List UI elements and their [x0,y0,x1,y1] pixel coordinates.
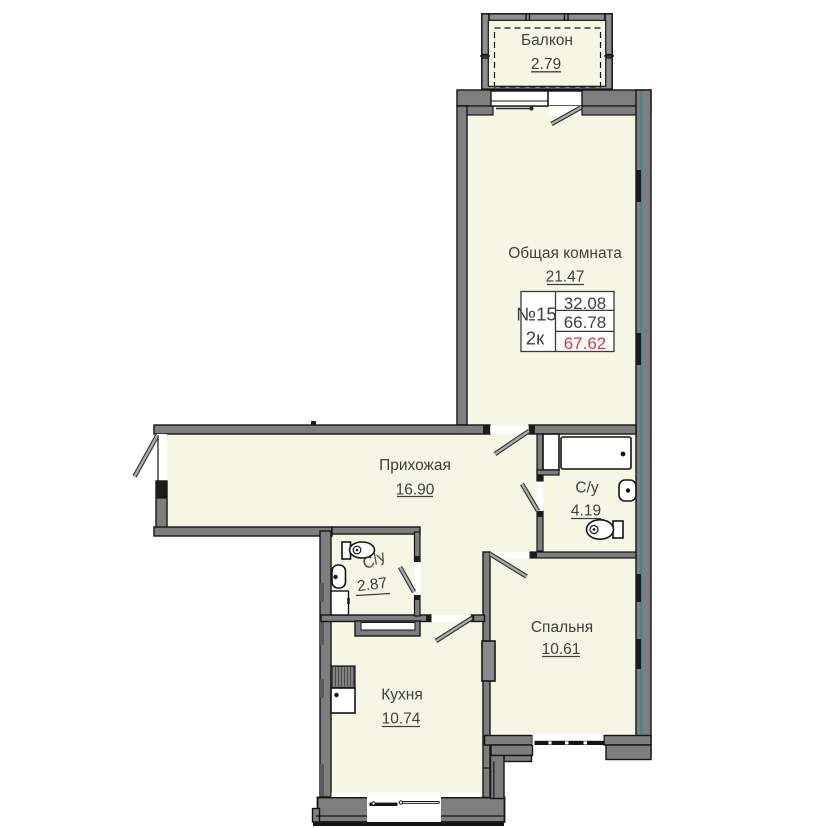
svg-text:66.78: 66.78 [564,313,607,332]
svg-text:Спальня: Спальня [531,619,593,636]
svg-text:Общая комната: Общая комната [508,245,622,262]
svg-text:С/у: С/у [575,479,599,496]
svg-text:32.08: 32.08 [564,294,607,313]
svg-text:10.74: 10.74 [382,710,421,727]
svg-text:Прихожая: Прихожая [379,457,451,474]
svg-text:2к: 2к [526,328,545,349]
svg-text:Кухня: Кухня [381,687,422,704]
svg-text:21.47: 21.47 [546,269,585,286]
svg-text:10.61: 10.61 [542,641,581,658]
svg-text:№15: №15 [516,304,556,325]
svg-text:Балкон: Балкон [521,32,573,49]
svg-text:2.79: 2.79 [531,56,561,73]
svg-text:4.19: 4.19 [571,503,601,520]
svg-text:67.62: 67.62 [564,334,607,353]
